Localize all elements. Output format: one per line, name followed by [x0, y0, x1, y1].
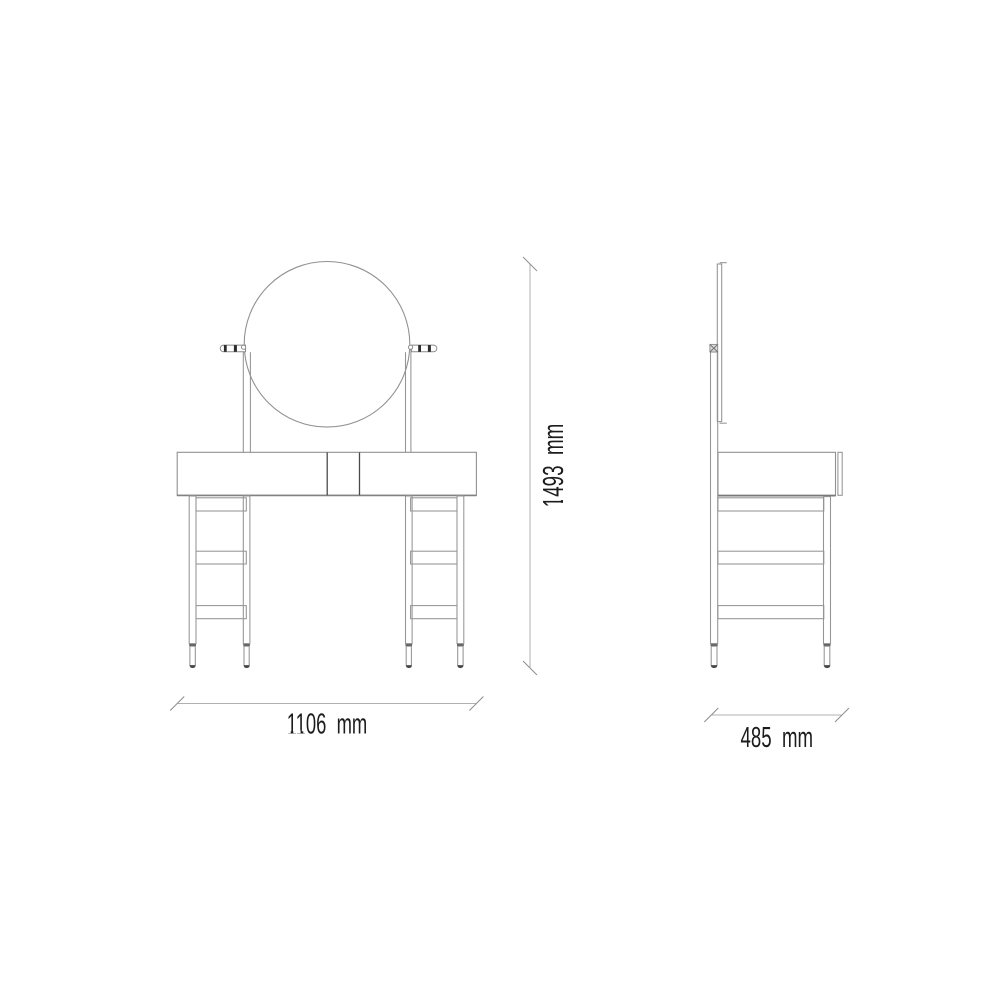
svg-text:485 mm: 485 mm — [741, 722, 814, 754]
svg-text:1493 mm: 1493 mm — [538, 424, 570, 508]
svg-text:1106 mm: 1106 mm — [287, 708, 368, 740]
